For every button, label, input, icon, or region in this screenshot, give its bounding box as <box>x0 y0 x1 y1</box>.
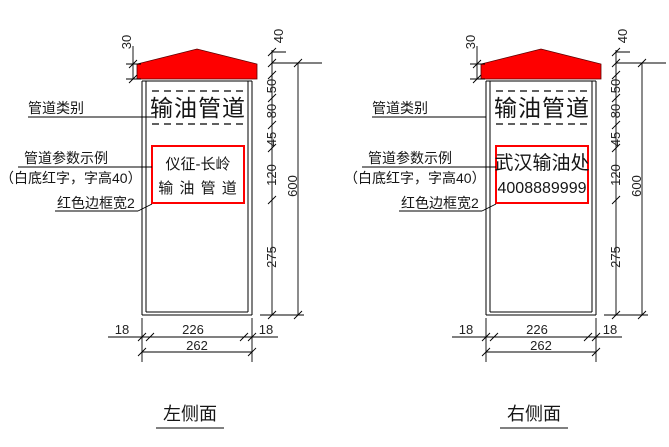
category-annotation-label: 管道类别 <box>372 100 428 116</box>
right-diagram-group: 输油管道 武汉输油处 4008889999 管道类别 管道参数示例 （白底红字，… <box>344 29 666 428</box>
param-annotation-line2: （白底红字，字高40） <box>0 170 142 186</box>
dim-seg-gap: 45 <box>264 132 279 146</box>
panel-text-line2: 4008889999 <box>498 180 587 197</box>
dim-seg-band: 50 <box>264 79 279 93</box>
section-title: 左侧面 <box>163 404 217 424</box>
dim-overall-width: 262 <box>186 338 208 353</box>
dim-seg-lower: 275 <box>264 246 279 268</box>
dim-margin-right: 18 <box>603 322 617 337</box>
pipeline-category-text: 输油管道 <box>150 95 246 121</box>
dim-seg-band: 50 <box>608 79 623 93</box>
right-side-view-diagram: 输油管道 武汉输油处 4008889999 管道类别 管道参数示例 （白底红字，… <box>334 0 669 447</box>
dim-seg-lower: 275 <box>608 246 623 268</box>
param-annotation-line1: 管道参数示例 <box>24 150 108 166</box>
pipeline-category-text: 输油管道 <box>494 95 590 121</box>
panel-text-line1: 武汉输油处 <box>494 152 589 174</box>
dim-inner-width: 226 <box>526 322 548 337</box>
drawing-canvas: 输油管道 仪征-长岭 输 油 管 道 管道类别 管道参数示例 （白底红字，字高4… <box>0 0 669 447</box>
dim-inner-width: 226 <box>182 322 204 337</box>
dim-margin-left: 18 <box>115 322 129 337</box>
dim-seg-category: 80 <box>264 104 279 118</box>
dim-seg-roof: 40 <box>615 29 630 43</box>
dim-margin-right: 18 <box>259 322 273 337</box>
dim-overall-width: 262 <box>530 338 552 353</box>
panel-text-line2: 输 油 管 道 <box>158 180 238 197</box>
sign-cap-roof <box>481 49 601 79</box>
border-annotation-label: 红色边框宽2 <box>57 195 135 211</box>
category-annotation-label: 管道类别 <box>28 100 84 116</box>
dim-seg-panel: 120 <box>608 164 623 186</box>
section-title: 右侧面 <box>507 404 561 424</box>
dim-seg-gap: 45 <box>608 132 623 146</box>
param-annotation-line1: 管道参数示例 <box>368 150 452 166</box>
dim-seg-roof: 40 <box>271 29 286 43</box>
dim-cap-height: 30 <box>463 35 478 49</box>
sign-cap-roof <box>137 49 257 79</box>
border-annotation-label: 红色边框宽2 <box>401 195 479 211</box>
dim-margin-left: 18 <box>459 322 473 337</box>
left-side-view-diagram: 输油管道 仪征-长岭 输 油 管 道 管道类别 管道参数示例 （白底红字，字高4… <box>0 0 335 447</box>
left-diagram-group: 输油管道 仪征-长岭 输 油 管 道 管道类别 管道参数示例 （白底红字，字高4… <box>0 29 322 428</box>
dim-cap-height: 30 <box>119 35 134 49</box>
dim-overall-height: 600 <box>629 175 644 197</box>
dim-seg-panel: 120 <box>264 164 279 186</box>
param-annotation-line2: （白底红字，字高40） <box>344 170 486 186</box>
panel-text-line1: 仪征-长岭 <box>166 156 231 173</box>
dim-overall-height: 600 <box>285 175 300 197</box>
dim-seg-category: 80 <box>608 104 623 118</box>
